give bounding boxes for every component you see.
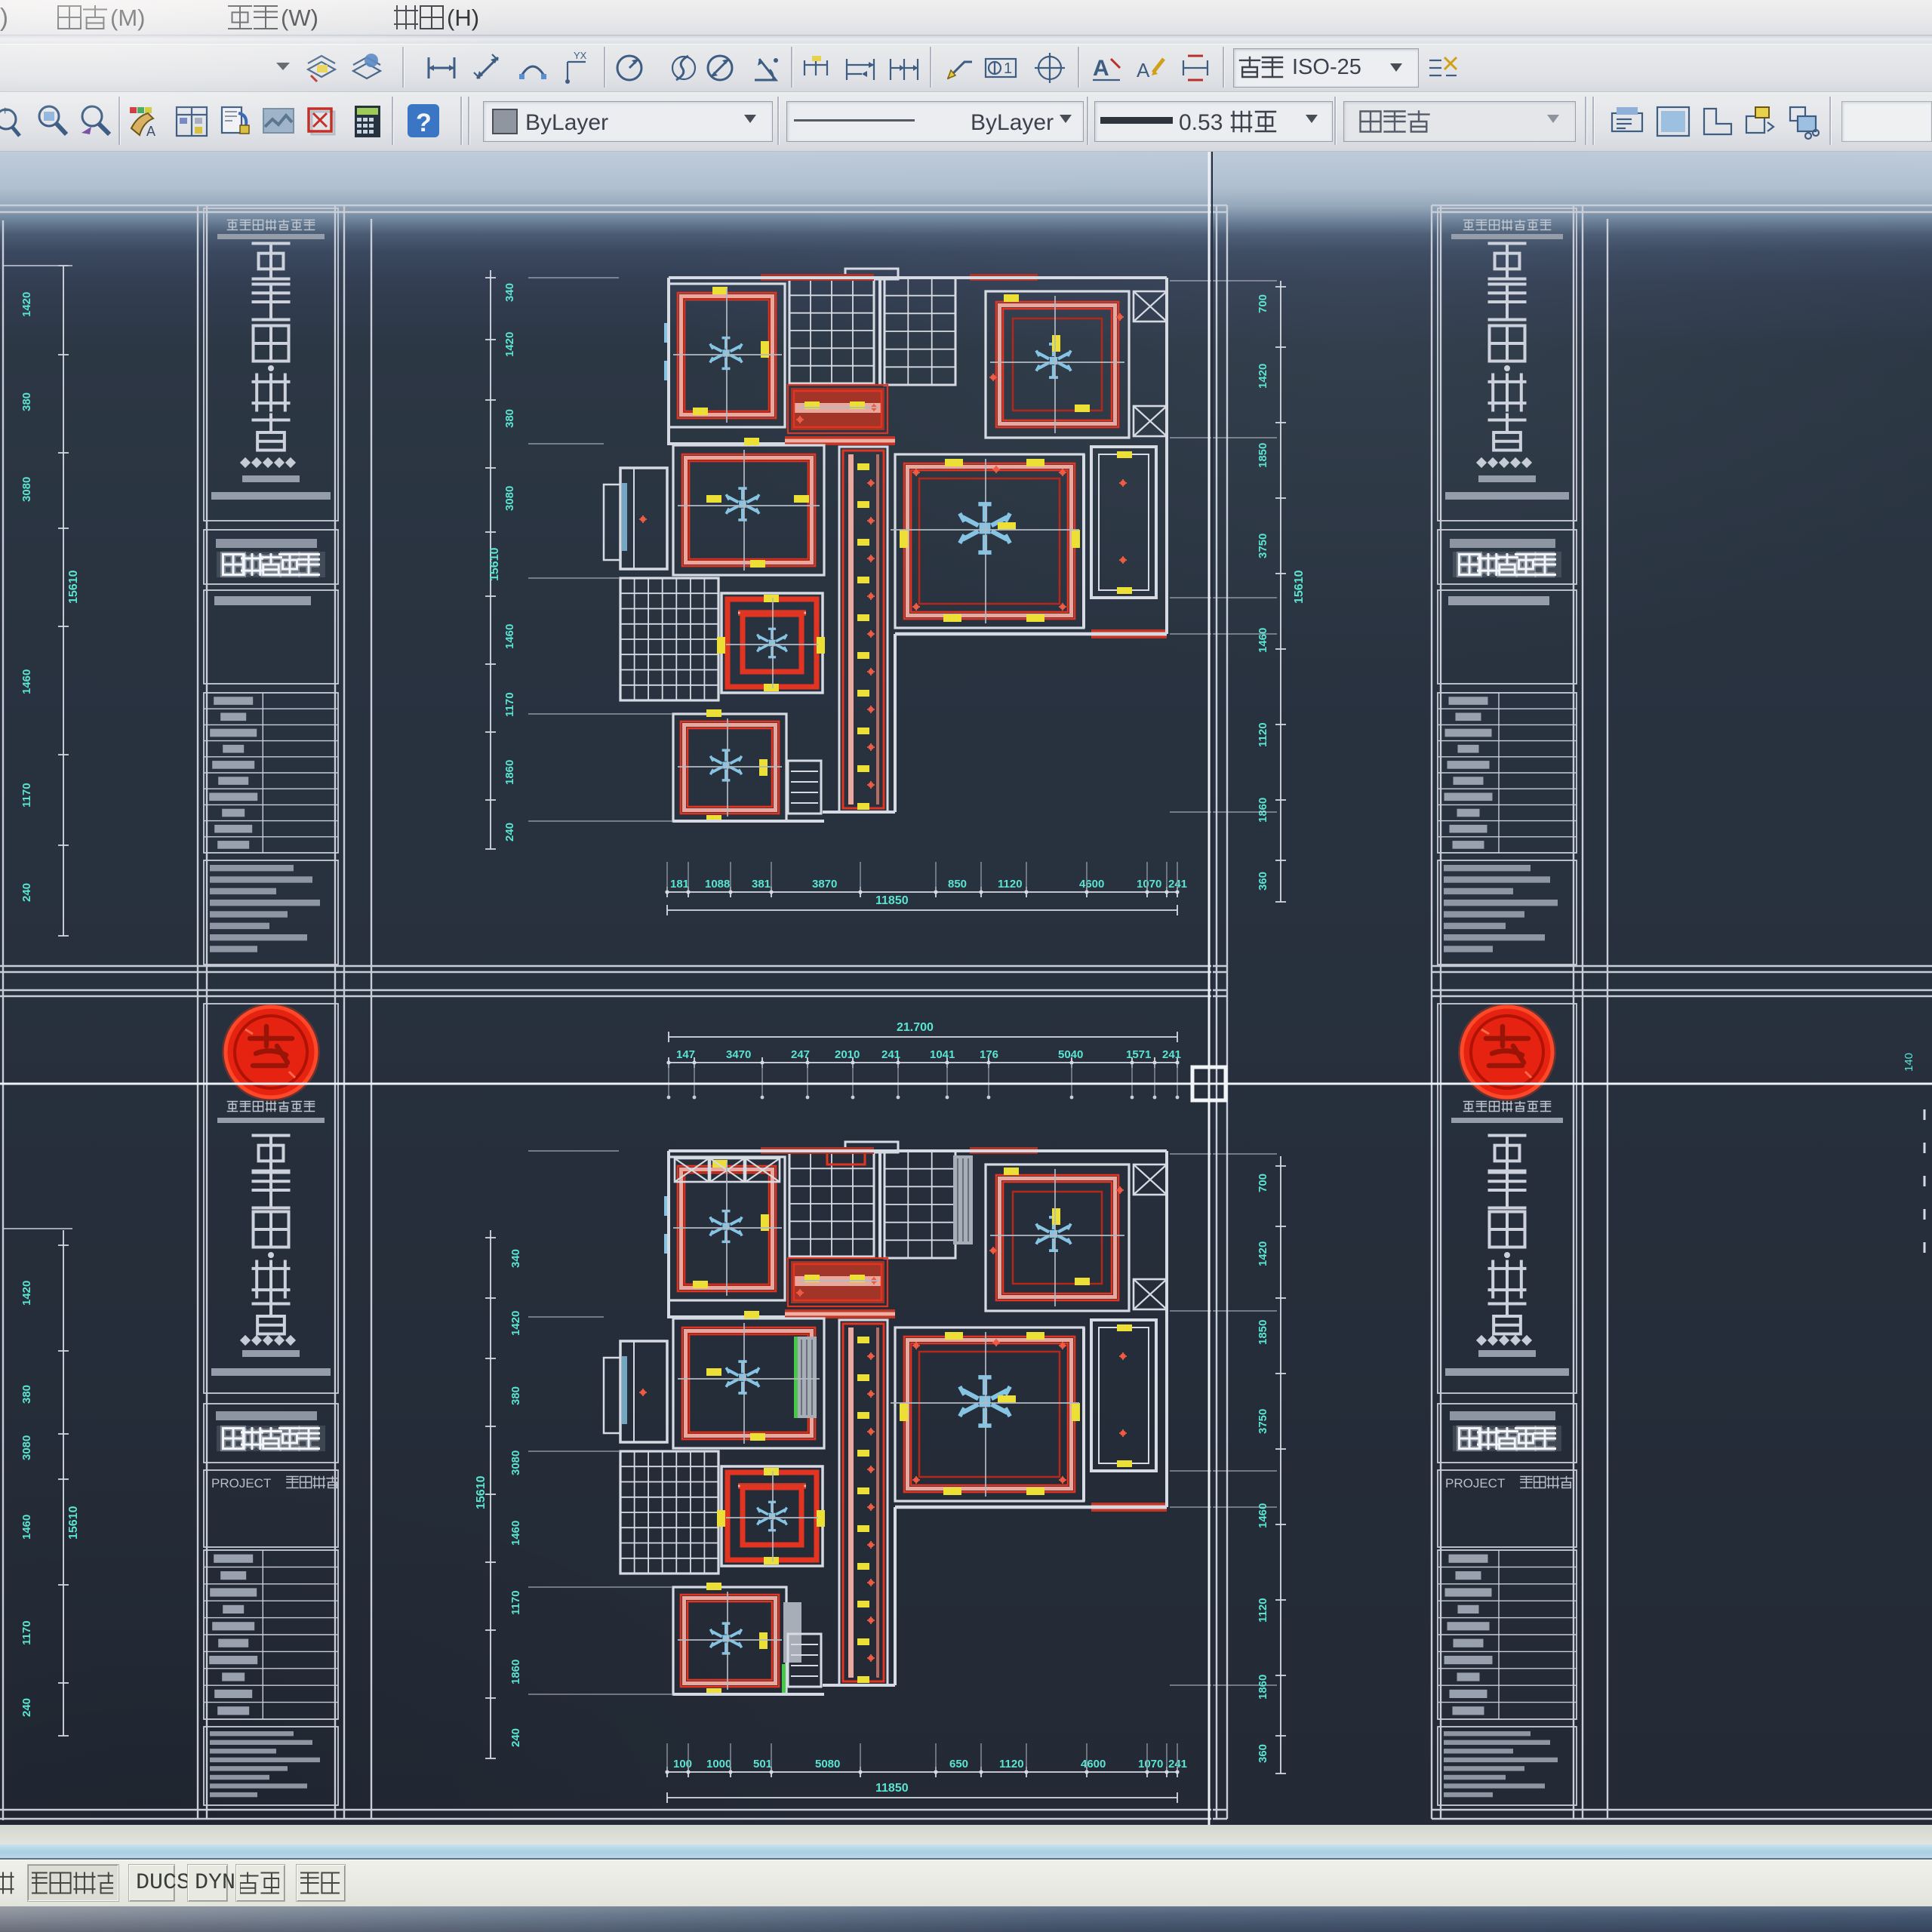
svg-text:3080: 3080 <box>509 1451 522 1475</box>
svg-text:241: 241 <box>881 1048 900 1061</box>
svg-text:PROJECT: PROJECT <box>1445 1476 1505 1491</box>
svg-text:1860: 1860 <box>509 1660 522 1684</box>
svg-text:11850: 11850 <box>875 1782 909 1795</box>
svg-text:1000: 1000 <box>706 1758 731 1770</box>
svg-text:147: 147 <box>676 1048 695 1061</box>
svg-text:1088: 1088 <box>705 878 730 891</box>
svg-text:15610: 15610 <box>67 1506 80 1540</box>
svg-text:650: 650 <box>949 1758 968 1770</box>
svg-text:501: 501 <box>753 1758 772 1770</box>
svg-text:1120: 1120 <box>1257 1598 1269 1623</box>
svg-text:1420: 1420 <box>1257 1241 1269 1266</box>
svg-text:15610: 15610 <box>1293 570 1306 604</box>
svg-text:240: 240 <box>509 1728 522 1747</box>
svg-text:1850: 1850 <box>1257 443 1269 468</box>
svg-text:15610: 15610 <box>475 1475 488 1509</box>
svg-text:15610: 15610 <box>67 570 80 604</box>
svg-text:381: 381 <box>752 878 771 891</box>
svg-text:1041: 1041 <box>930 1048 955 1061</box>
svg-text:1420: 1420 <box>503 332 516 357</box>
svg-text:1120: 1120 <box>998 878 1023 891</box>
svg-text:247: 247 <box>791 1048 810 1061</box>
svg-text:1120: 1120 <box>999 1758 1024 1770</box>
svg-text:700: 700 <box>1257 1174 1269 1192</box>
svg-text:1170: 1170 <box>20 1620 33 1645</box>
svg-text:3080: 3080 <box>503 486 516 511</box>
svg-text:2010: 2010 <box>835 1048 860 1061</box>
svg-text:241: 241 <box>1162 1048 1181 1061</box>
svg-text:340: 340 <box>509 1249 522 1268</box>
svg-text:240: 240 <box>20 1698 33 1717</box>
svg-text:1420: 1420 <box>20 292 33 317</box>
svg-text:1571: 1571 <box>1126 1048 1151 1061</box>
svg-text:1460: 1460 <box>1257 628 1269 653</box>
svg-text:181: 181 <box>670 878 689 891</box>
svg-text:5040: 5040 <box>1058 1048 1083 1061</box>
svg-text:380: 380 <box>509 1386 522 1405</box>
svg-text:3750: 3750 <box>1257 534 1269 558</box>
svg-text:1120: 1120 <box>1257 722 1269 747</box>
svg-text:176: 176 <box>980 1048 998 1061</box>
svg-text:1420: 1420 <box>1257 364 1269 389</box>
svg-text:1460: 1460 <box>20 1515 33 1540</box>
svg-text:11850: 11850 <box>875 894 909 907</box>
svg-text:360: 360 <box>1257 872 1269 891</box>
svg-text:4600: 4600 <box>1079 878 1104 891</box>
svg-text:3080: 3080 <box>20 1435 33 1460</box>
svg-text:3470: 3470 <box>726 1048 751 1061</box>
svg-text:1420: 1420 <box>20 1281 33 1306</box>
svg-text:100: 100 <box>673 1758 692 1770</box>
svg-text:4600: 4600 <box>1081 1758 1106 1770</box>
svg-text:360: 360 <box>1257 1744 1269 1763</box>
svg-text:1860: 1860 <box>1257 1675 1269 1700</box>
svg-text:1860: 1860 <box>1257 798 1269 823</box>
svg-text:PROJECT: PROJECT <box>211 1476 271 1491</box>
svg-text:380: 380 <box>20 1385 33 1404</box>
svg-text:1460: 1460 <box>509 1521 522 1546</box>
svg-text:3870: 3870 <box>812 878 837 891</box>
svg-text:140: 140 <box>1903 1053 1915 1072</box>
svg-text:1070: 1070 <box>1137 878 1161 891</box>
svg-text:340: 340 <box>503 283 516 302</box>
svg-text:5080: 5080 <box>815 1758 840 1770</box>
svg-text:15610: 15610 <box>488 547 501 581</box>
svg-text:3750: 3750 <box>1257 1409 1269 1434</box>
svg-text:1420: 1420 <box>509 1311 522 1336</box>
svg-text:240: 240 <box>503 823 516 841</box>
svg-text:1460: 1460 <box>20 669 33 694</box>
svg-text:240: 240 <box>20 883 33 902</box>
svg-text:1170: 1170 <box>503 692 516 717</box>
svg-text:21.700: 21.700 <box>897 1021 934 1034</box>
svg-text:850: 850 <box>948 878 967 891</box>
svg-text:380: 380 <box>20 392 33 411</box>
svg-text:1850: 1850 <box>1257 1320 1269 1345</box>
svg-text:1460: 1460 <box>503 624 516 649</box>
svg-text:700: 700 <box>1257 294 1269 313</box>
svg-text:1860: 1860 <box>503 760 516 785</box>
svg-text:1170: 1170 <box>509 1590 522 1615</box>
svg-text:1170: 1170 <box>20 783 33 808</box>
svg-text:1460: 1460 <box>1257 1503 1269 1528</box>
svg-text:380: 380 <box>503 409 516 428</box>
svg-text:3080: 3080 <box>20 477 33 502</box>
svg-text:1070: 1070 <box>1138 1758 1163 1770</box>
